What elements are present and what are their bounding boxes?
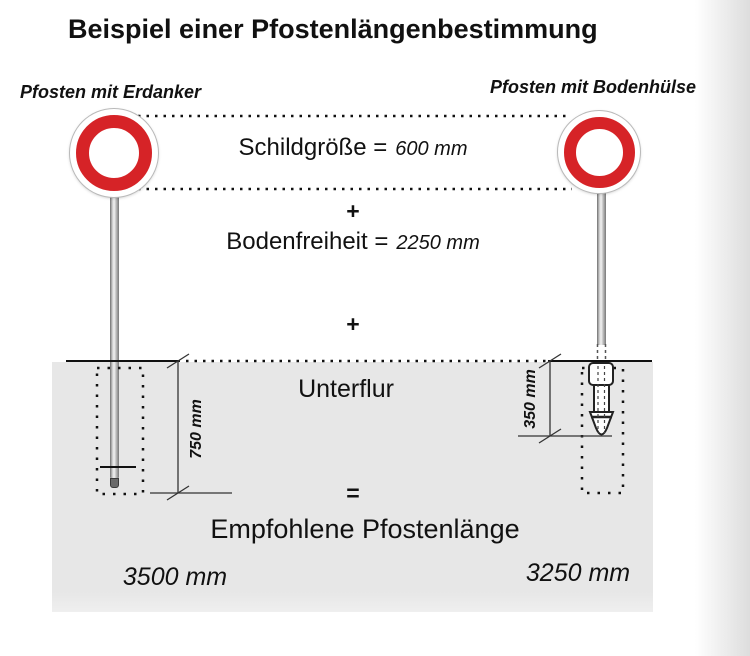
result-label: Empfohlene Pfostenlänge (210, 514, 519, 545)
depth-label-350mm: 350 mm (522, 359, 540, 439)
depth-label-750mm: 750 mm (188, 389, 206, 469)
sign-size-row: Schildgröße =600 mm (239, 134, 468, 162)
post-left-tip (110, 478, 119, 488)
equals-operator: = (346, 480, 359, 507)
label-pfosten-bodenhuelse: Pfosten mit Bodenhülse (490, 77, 696, 98)
clearance-row: Bodenfreiheit =2250 mm (226, 228, 480, 256)
clearance-value: 2250 mm (396, 232, 479, 254)
post-length-left: 3500 mm (123, 563, 227, 592)
post-left-erdanker (110, 191, 119, 478)
sign-red-ring-left (76, 115, 152, 191)
post-right-bodenhuelse (597, 186, 606, 345)
traffic-sign-right (558, 111, 640, 193)
label-pfosten-erdanker: Pfosten mit Erdanker (20, 82, 201, 103)
clearance-label: Bodenfreiheit = (226, 228, 388, 255)
traffic-sign-left (70, 109, 158, 197)
diagram-title: Beispiel einer Pfostenlängenbestimmung (68, 14, 598, 45)
right-edge-gradient (695, 0, 750, 656)
underground-label: Unterflur (298, 375, 394, 404)
post-length-right: 3250 mm (526, 559, 630, 588)
sign-size-value: 600 mm (395, 138, 467, 160)
plus-operator-2: + (346, 311, 359, 338)
plus-operator-1: + (346, 198, 359, 225)
sign-size-label: Schildgröße = (239, 134, 388, 161)
diagram-canvas: Beispiel einer Pfostenlängenbestimmung P… (0, 0, 750, 656)
sign-red-ring-right (564, 117, 635, 188)
